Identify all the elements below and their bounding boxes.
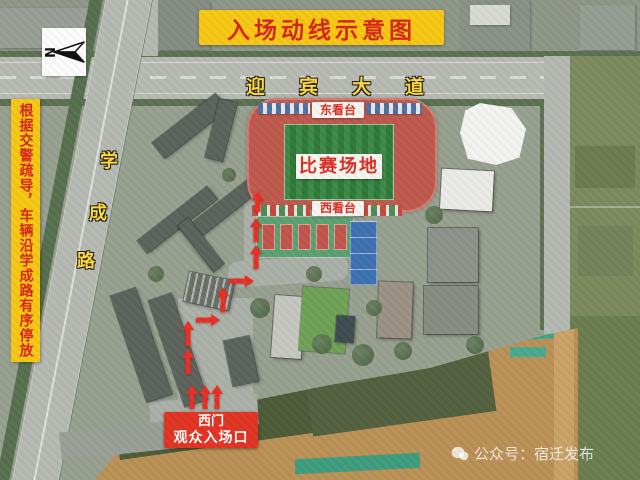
green-netting <box>295 453 421 475</box>
east-stand-seats <box>366 103 422 114</box>
city-block <box>580 5 635 50</box>
tree <box>250 298 270 318</box>
basketball-court <box>298 224 311 250</box>
crop-field <box>305 349 497 436</box>
xuecheng-road-char: 成 <box>89 199 107 225</box>
farm-fields-right <box>570 56 640 480</box>
basketball-court <box>280 224 293 250</box>
basketball-courts <box>257 217 353 257</box>
west-stand-tents <box>362 205 402 216</box>
tree <box>306 266 322 282</box>
white-roof-building <box>440 169 494 212</box>
wechat-icon <box>451 446 469 462</box>
dormitory-building <box>377 281 413 338</box>
basketball-court <box>262 224 275 250</box>
tree <box>148 266 164 282</box>
west-stand-label: 西看台 <box>312 201 364 216</box>
compass-north-indicator: N <box>42 28 86 76</box>
right-road <box>544 56 570 334</box>
watermark-text: 公众号：宿迁发布 <box>474 443 594 464</box>
school-building <box>428 228 478 282</box>
xuecheng-road-char: 路 <box>77 247 95 273</box>
field-patch <box>578 226 633 276</box>
west-gate-line1: 西门 <box>164 414 258 430</box>
watermark: 公众号：宿迁发布 <box>451 443 594 464</box>
tree <box>466 336 484 354</box>
tree <box>312 334 332 354</box>
competition-field-label: 比赛场地 <box>296 154 382 179</box>
field-patch <box>575 146 635 188</box>
tree <box>222 168 236 182</box>
yingbin-avenue-label: 迎宾大道 <box>246 72 458 99</box>
page-title: 入场动线示意图 <box>199 10 444 45</box>
compass-arrow-icon <box>53 41 85 63</box>
field-path <box>570 206 640 208</box>
east-stand-label: 东看台 <box>312 102 364 118</box>
basketball-court <box>334 224 347 250</box>
green-netting <box>510 347 546 357</box>
gymnasium-dome <box>460 103 526 165</box>
tree-line <box>540 100 544 330</box>
tree <box>425 206 443 224</box>
small-building <box>335 315 355 342</box>
parking-notice-banner: 根据交警疏导，车辆沿学成路有序停放 <box>11 99 40 362</box>
tree <box>366 300 382 316</box>
west-gate-entrance-label: 西门 观众入场口 <box>164 412 258 448</box>
west-stand-tents <box>252 205 310 216</box>
tennis-courts <box>350 221 377 285</box>
tree <box>352 344 374 366</box>
east-stand-seats <box>258 103 310 114</box>
city-block <box>470 5 510 25</box>
tree <box>394 342 412 360</box>
basketball-court <box>316 224 329 250</box>
xuecheng-road-char: 学 <box>100 147 118 173</box>
entry-route-map: 入场动线示意图 根据交警疏导，车辆沿学成路有序停放 N 迎宾大道 学 成 路 东… <box>0 0 640 480</box>
school-building <box>424 286 478 334</box>
west-gate-line2: 观众入场口 <box>164 430 258 446</box>
